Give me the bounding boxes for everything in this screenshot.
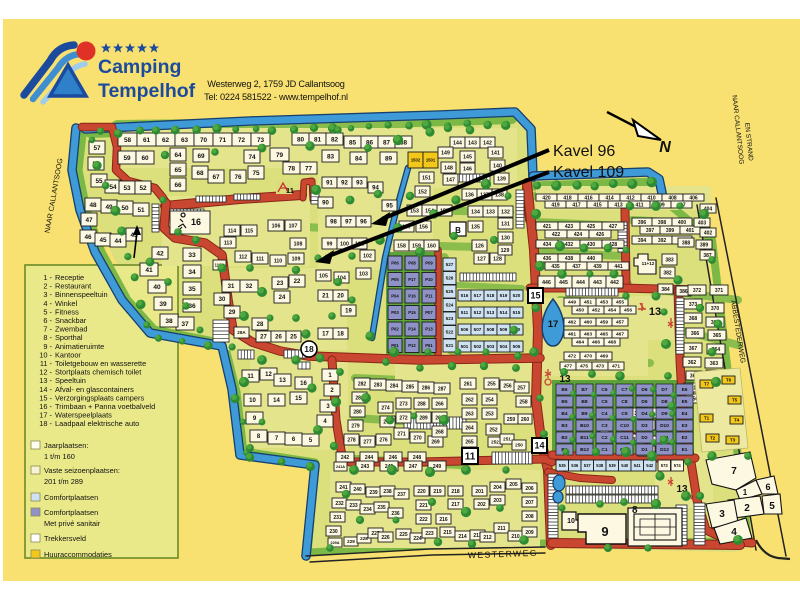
svg-text:372: 372: [693, 288, 702, 294]
svg-text:463: 463: [584, 332, 592, 338]
svg-text:210: 210: [511, 534, 520, 540]
svg-text:201: 201: [475, 489, 484, 495]
svg-text:505: 505: [513, 344, 521, 349]
svg-text:511: 511: [461, 310, 469, 315]
svg-text:225: 225: [399, 532, 408, 538]
svg-text:366: 366: [691, 331, 700, 337]
svg-text:509: 509: [500, 327, 508, 332]
svg-text:519: 519: [500, 293, 508, 298]
svg-text:D5: D5: [641, 399, 647, 405]
svg-text:62: 62: [162, 137, 170, 144]
svg-text:Laadpaal elektrische auto: Laadpaal elektrische auto: [55, 419, 139, 428]
svg-text:T2: T2: [710, 436, 716, 441]
svg-text:416: 416: [584, 195, 593, 201]
svg-text:Kavel 109: Kavel 109: [553, 164, 624, 181]
svg-text:14: 14: [273, 398, 280, 404]
svg-text:44: 44: [114, 238, 122, 245]
svg-text:132: 132: [501, 209, 510, 215]
svg-text:Kavel 96: Kavel 96: [553, 143, 615, 160]
svg-text:362: 362: [688, 360, 697, 366]
svg-text:425: 425: [587, 224, 596, 230]
svg-text:83: 83: [327, 153, 335, 160]
svg-text:17: 17: [548, 319, 559, 330]
svg-text:17: 17: [322, 332, 329, 338]
svg-text:439: 439: [593, 264, 602, 270]
svg-text:131: 131: [501, 221, 510, 227]
svg-text:472: 472: [568, 354, 576, 360]
svg-text:525: 525: [446, 289, 454, 294]
svg-text:258: 258: [519, 399, 528, 405]
svg-text:E1: E1: [682, 447, 688, 453]
svg-text:P08: P08: [408, 261, 416, 266]
svg-text:282: 282: [358, 381, 367, 387]
svg-text:146: 146: [463, 166, 472, 172]
svg-text:T4: T4: [734, 418, 740, 423]
svg-text:P06: P06: [391, 261, 399, 266]
svg-text:457: 457: [616, 320, 624, 326]
svg-text:55: 55: [95, 178, 103, 185]
svg-text:Comfortplaatsen: Comfortplaatsen: [44, 493, 98, 502]
svg-text:235: 235: [377, 505, 386, 511]
svg-text:403: 403: [698, 220, 707, 226]
svg-text:E3: E3: [682, 423, 688, 429]
svg-text:78: 78: [288, 165, 296, 172]
svg-text:524: 524: [446, 303, 454, 308]
svg-text:229A: 229A: [330, 541, 339, 545]
svg-text:C5: C5: [601, 399, 607, 405]
svg-text:21: 21: [322, 294, 329, 300]
svg-text:466: 466: [592, 340, 600, 346]
svg-text:31: 31: [228, 284, 235, 290]
svg-text:238: 238: [383, 489, 392, 495]
svg-text:93: 93: [356, 181, 363, 187]
svg-text:521: 521: [446, 343, 454, 348]
svg-text:158: 158: [397, 243, 406, 249]
svg-text:B9: B9: [581, 411, 587, 417]
svg-text:81: 81: [314, 136, 322, 143]
svg-text:C1: C1: [601, 447, 607, 453]
svg-text:48: 48: [89, 202, 97, 209]
svg-text:95: 95: [386, 204, 393, 210]
svg-text:D9: D9: [661, 411, 667, 417]
svg-text:100: 100: [340, 241, 349, 247]
svg-text:1502: 1502: [411, 158, 421, 163]
svg-text:203: 203: [493, 498, 502, 504]
svg-text:279: 279: [351, 423, 360, 429]
svg-text:501: 501: [461, 344, 469, 349]
svg-text:74: 74: [248, 154, 256, 161]
svg-text:51: 51: [137, 207, 145, 214]
svg-text:102: 102: [363, 253, 372, 259]
svg-text:P10: P10: [425, 277, 433, 282]
svg-text:453: 453: [600, 300, 608, 306]
svg-text:265: 265: [465, 439, 474, 445]
svg-text:456: 456: [624, 308, 632, 314]
svg-text:1501: 1501: [426, 158, 436, 163]
svg-text:144: 144: [453, 140, 462, 146]
svg-text:475: 475: [580, 364, 588, 370]
svg-text:424: 424: [574, 232, 583, 238]
svg-text:507: 507: [474, 327, 482, 332]
svg-text:134: 134: [471, 209, 480, 215]
svg-text:236: 236: [391, 511, 400, 517]
svg-text:90: 90: [322, 201, 329, 207]
svg-text:8: 8: [632, 505, 638, 516]
svg-text:53: 53: [123, 185, 131, 192]
svg-text:99: 99: [327, 241, 333, 247]
svg-text:23: 23: [277, 281, 284, 287]
svg-text:151: 151: [422, 175, 431, 181]
svg-text:76: 76: [234, 174, 242, 181]
svg-text:252: 252: [491, 440, 499, 445]
svg-text:446: 446: [542, 280, 551, 286]
svg-text:Met privé sanitair: Met privé sanitair: [44, 519, 101, 528]
svg-text:60: 60: [141, 155, 149, 162]
svg-text:464: 464: [576, 340, 584, 346]
svg-text:440: 440: [587, 256, 596, 262]
svg-text:B2: B2: [561, 435, 567, 441]
svg-text:D2: D2: [641, 435, 647, 441]
svg-text:Tel: 0224 581522 - www.tempelh: Tel: 0224 581522 - www.tempelhof.nl: [204, 92, 348, 102]
svg-text:T6: T6: [726, 378, 732, 383]
svg-text:467: 467: [616, 332, 624, 338]
svg-text:C9: C9: [621, 411, 627, 417]
svg-text:18 -: 18 -: [39, 419, 52, 428]
svg-text:211: 211: [497, 526, 505, 532]
svg-text:149: 149: [441, 150, 450, 156]
svg-text:272: 272: [399, 415, 408, 421]
svg-text:142: 142: [483, 140, 492, 146]
svg-text:573: 573: [661, 463, 669, 468]
svg-text:P09: P09: [425, 261, 433, 266]
svg-text:255: 255: [487, 381, 496, 387]
svg-text:112: 112: [239, 254, 247, 260]
svg-text:222: 222: [419, 517, 428, 523]
svg-text:270: 270: [413, 435, 422, 441]
svg-text:503: 503: [487, 344, 495, 349]
svg-text:260: 260: [521, 417, 530, 423]
svg-text:289: 289: [419, 415, 428, 421]
svg-text:413: 413: [614, 202, 623, 208]
svg-text:41: 41: [145, 267, 153, 274]
svg-text:P17: P17: [408, 277, 416, 282]
svg-text:219: 219: [433, 489, 442, 495]
svg-text:286: 286: [422, 385, 431, 391]
svg-text:241A: 241A: [336, 465, 345, 469]
svg-text:228: 228: [360, 536, 368, 541]
svg-text:471: 471: [612, 364, 620, 370]
svg-text:Westerweg 2, 1759 JD Callantso: Westerweg 2, 1759 JD Callantsoog: [207, 79, 345, 89]
svg-text:449: 449: [568, 300, 576, 306]
svg-text:15: 15: [530, 291, 540, 301]
svg-text:574: 574: [674, 463, 682, 468]
svg-text:204: 204: [493, 485, 502, 491]
svg-text:283: 283: [374, 382, 383, 388]
svg-text:522: 522: [446, 330, 454, 335]
svg-text:P12: P12: [408, 343, 416, 348]
svg-text:273: 273: [399, 401, 408, 407]
svg-text:538: 538: [596, 463, 604, 468]
svg-text:240: 240: [353, 487, 362, 493]
svg-text:27: 27: [260, 335, 267, 341]
svg-text:126: 126: [475, 243, 484, 249]
svg-text:77: 77: [305, 165, 313, 172]
svg-text:114: 114: [228, 228, 236, 234]
svg-text:473: 473: [596, 364, 604, 370]
svg-text:32: 32: [246, 284, 253, 290]
svg-text:384: 384: [661, 287, 670, 293]
svg-text:257: 257: [517, 385, 526, 391]
svg-text:392: 392: [658, 238, 667, 244]
svg-text:367: 367: [689, 346, 698, 352]
svg-text:216: 216: [439, 517, 448, 523]
svg-text:243: 243: [361, 464, 370, 470]
svg-text:Camping: Camping: [98, 56, 181, 78]
svg-text:1 t/m 160: 1 t/m 160: [44, 452, 75, 461]
svg-text:436: 436: [543, 256, 552, 262]
svg-text:156: 156: [419, 224, 428, 230]
svg-text:B6: B6: [561, 387, 567, 393]
svg-text:517: 517: [474, 293, 482, 298]
svg-text:45: 45: [99, 237, 107, 244]
svg-text:C8: C8: [621, 399, 627, 405]
svg-text:535: 535: [559, 463, 567, 468]
svg-text:442: 442: [610, 280, 619, 286]
svg-text:B5: B5: [561, 399, 567, 405]
svg-text:Vaste seizoenplaatsen:: Vaste seizoenplaatsen:: [44, 466, 120, 475]
svg-text:201 t/m 289: 201 t/m 289: [44, 477, 83, 486]
svg-text:153: 153: [410, 208, 419, 214]
svg-text:527: 527: [446, 262, 454, 267]
svg-text:10: 10: [249, 398, 256, 404]
svg-text:435: 435: [551, 264, 560, 270]
svg-text:135: 135: [471, 224, 480, 230]
svg-text:1: 1: [743, 488, 748, 497]
svg-text:443: 443: [593, 280, 602, 286]
svg-text:33: 33: [188, 252, 196, 259]
svg-text:35: 35: [188, 286, 196, 293]
svg-text:C4: C4: [601, 411, 607, 417]
svg-text:133: 133: [486, 209, 495, 215]
svg-text:9: 9: [601, 524, 608, 539]
svg-text:441: 441: [614, 264, 623, 270]
svg-text:52: 52: [139, 185, 147, 192]
svg-text:115: 115: [245, 228, 253, 234]
svg-text:280: 280: [353, 409, 362, 415]
svg-text:451: 451: [584, 300, 592, 306]
svg-text:452: 452: [592, 308, 600, 314]
svg-text:215: 215: [443, 530, 452, 536]
svg-text:461: 461: [568, 332, 576, 338]
svg-text:39: 39: [159, 301, 167, 308]
svg-text:38: 38: [165, 318, 173, 325]
svg-text:67: 67: [212, 174, 220, 181]
svg-text:239: 239: [369, 490, 378, 496]
svg-text:237: 237: [397, 492, 406, 498]
svg-text:152: 152: [418, 189, 427, 195]
svg-text:P02: P02: [391, 327, 399, 332]
svg-text:371: 371: [715, 288, 724, 294]
svg-text:34: 34: [188, 269, 196, 276]
svg-text:Trekkersveld: Trekkersveld: [44, 534, 86, 543]
svg-text:106: 106: [272, 223, 281, 229]
svg-text:65: 65: [174, 167, 182, 174]
svg-text:401: 401: [686, 228, 695, 234]
svg-text:Tempelhof: Tempelhof: [98, 80, 196, 102]
svg-text:266: 266: [435, 401, 444, 407]
svg-text:420: 420: [542, 195, 551, 201]
svg-text:437: 437: [572, 264, 581, 270]
svg-text:C3: C3: [601, 423, 607, 429]
svg-text:417: 417: [572, 202, 581, 208]
svg-text:147: 147: [446, 177, 455, 183]
svg-text:209: 209: [525, 530, 534, 536]
svg-text:61: 61: [143, 137, 151, 144]
svg-text:Comfortplaatsen: Comfortplaatsen: [44, 508, 98, 517]
svg-text:212: 212: [483, 535, 492, 541]
svg-text:B4: B4: [561, 411, 567, 417]
svg-text:98: 98: [330, 220, 337, 226]
svg-text:P61: P61: [425, 343, 433, 348]
svg-text:97: 97: [345, 220, 352, 226]
svg-text:520: 520: [513, 293, 521, 298]
svg-text:285: 285: [406, 384, 415, 390]
svg-text:68: 68: [196, 170, 204, 177]
svg-text:419: 419: [551, 202, 560, 208]
svg-text:250: 250: [515, 443, 523, 448]
svg-text:P13: P13: [425, 327, 433, 332]
svg-text:414: 414: [605, 195, 614, 201]
svg-text:254: 254: [485, 397, 494, 403]
svg-text:22: 22: [294, 279, 301, 285]
svg-text:26: 26: [275, 335, 282, 341]
svg-text:15: 15: [295, 396, 302, 402]
svg-text:248: 248: [413, 455, 422, 461]
svg-text:408: 408: [668, 195, 677, 201]
svg-text:512: 512: [474, 310, 482, 315]
svg-text:262: 262: [465, 397, 474, 403]
svg-text:29: 29: [229, 310, 236, 316]
svg-text:107: 107: [289, 223, 298, 229]
svg-text:E5: E5: [682, 399, 688, 405]
svg-text:541: 541: [634, 463, 642, 468]
svg-text:444: 444: [576, 280, 585, 286]
svg-text:432: 432: [565, 242, 574, 248]
svg-text:103: 103: [359, 271, 368, 277]
svg-text:368: 368: [689, 316, 698, 322]
svg-text:274: 274: [381, 405, 390, 411]
svg-text:C6: C6: [601, 387, 607, 393]
svg-text:226: 226: [381, 535, 390, 541]
svg-text:T1: T1: [704, 416, 710, 421]
svg-text:399: 399: [666, 228, 675, 234]
svg-text:P05: P05: [391, 277, 399, 282]
svg-text:214: 214: [458, 534, 467, 540]
svg-text:82: 82: [331, 136, 339, 143]
svg-text:208: 208: [525, 514, 534, 520]
svg-text:18: 18: [304, 344, 314, 354]
svg-text:Jaarplaatsen:: Jaarplaatsen:: [44, 441, 88, 450]
svg-text:113: 113: [224, 240, 232, 246]
svg-text:502: 502: [474, 344, 482, 349]
svg-text:229: 229: [347, 539, 355, 544]
svg-text:402: 402: [704, 230, 713, 236]
svg-text:40: 40: [153, 284, 161, 291]
svg-text:11+12: 11+12: [642, 261, 655, 266]
svg-text:251: 251: [503, 437, 511, 442]
svg-text:202: 202: [477, 502, 486, 508]
svg-text:230: 230: [329, 529, 338, 535]
svg-text:244: 244: [365, 455, 374, 461]
svg-text:20: 20: [337, 294, 344, 300]
svg-text:221: 221: [419, 503, 428, 509]
svg-text:288: 288: [417, 401, 426, 407]
svg-text:269: 269: [431, 439, 440, 445]
svg-text:25: 25: [290, 335, 297, 341]
svg-text:59: 59: [123, 155, 131, 162]
svg-text:84: 84: [355, 155, 363, 162]
svg-text:539: 539: [609, 463, 617, 468]
svg-text:224: 224: [413, 536, 422, 542]
svg-text:37: 37: [181, 321, 189, 328]
svg-text:454: 454: [608, 308, 616, 314]
svg-text:143: 143: [468, 140, 477, 146]
svg-text:415: 415: [593, 202, 602, 208]
svg-text:91: 91: [326, 181, 333, 187]
svg-text:75: 75: [252, 170, 260, 177]
svg-text:D1: D1: [641, 447, 647, 453]
svg-text:205: 205: [509, 482, 518, 488]
svg-text:14: 14: [534, 441, 544, 451]
svg-text:247: 247: [409, 464, 418, 470]
svg-text:129: 129: [501, 248, 510, 254]
svg-text:514: 514: [500, 310, 508, 315]
svg-text:207: 207: [525, 500, 534, 506]
svg-text:B11: B11: [580, 435, 589, 441]
svg-text:427: 427: [609, 224, 618, 230]
svg-text:383: 383: [665, 257, 674, 263]
svg-text:515: 515: [513, 310, 521, 315]
svg-text:6: 6: [765, 482, 770, 492]
svg-text:259: 259: [507, 417, 516, 423]
svg-text:268: 268: [435, 429, 444, 435]
svg-text:50: 50: [121, 205, 129, 212]
svg-text:B7: B7: [581, 387, 587, 393]
svg-text:253: 253: [485, 411, 494, 417]
svg-text:18: 18: [337, 332, 344, 338]
svg-text:57: 57: [93, 145, 101, 152]
svg-text:13: 13: [649, 306, 661, 318]
svg-text:370: 370: [711, 306, 720, 312]
svg-text:D6: D6: [641, 387, 647, 393]
svg-text:92: 92: [341, 181, 348, 187]
svg-text:261: 261: [464, 381, 473, 387]
svg-text:396: 396: [638, 220, 647, 226]
svg-text:5: 5: [769, 501, 775, 512]
svg-text:455: 455: [616, 300, 624, 306]
svg-text:105: 105: [319, 273, 328, 279]
svg-text:P14: P14: [408, 327, 416, 332]
svg-text:249: 249: [433, 464, 442, 470]
svg-text:287: 287: [438, 386, 447, 392]
svg-text:130: 130: [501, 235, 510, 241]
svg-text:223: 223: [425, 531, 434, 537]
svg-text:418: 418: [563, 195, 572, 201]
svg-text:459: 459: [600, 320, 608, 326]
svg-text:389: 389: [700, 242, 709, 248]
svg-text:264: 264: [465, 425, 474, 431]
svg-text:47: 47: [85, 217, 93, 224]
